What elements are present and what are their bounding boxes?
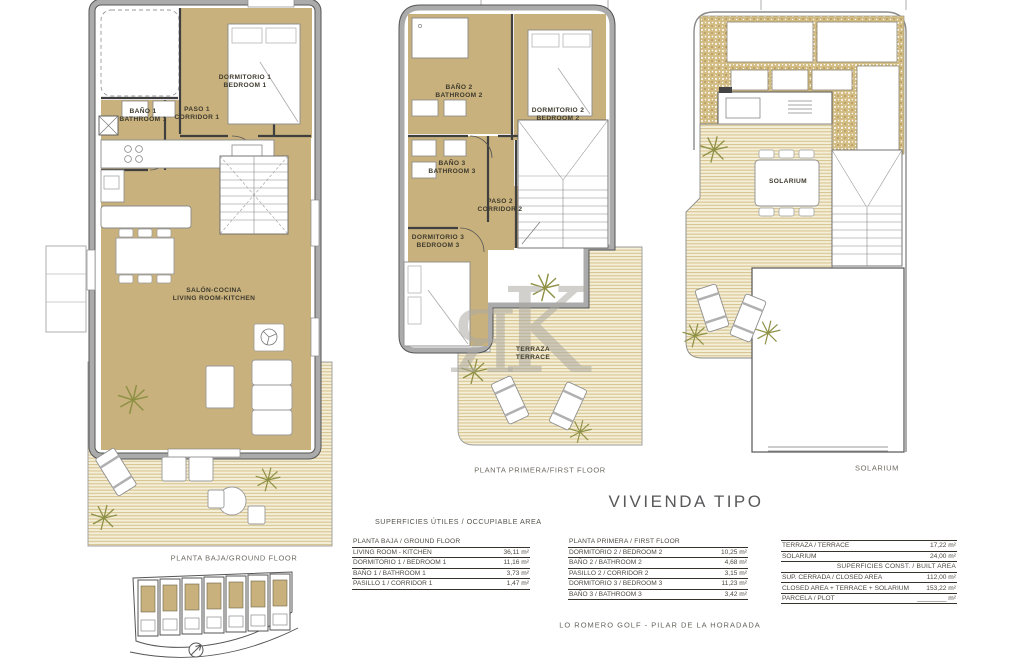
ground-floor-plan xyxy=(46,0,332,546)
solarium-stairs xyxy=(832,150,902,266)
label-terrace: TERRAZA TERRACE xyxy=(516,346,550,362)
table-row: LIVING ROOM - KITCHEN36,11 m² xyxy=(352,548,530,559)
page-title: VIVIENDA TIPO xyxy=(608,492,763,512)
section-title-occupiable: SUPERFICIES ÚTILES / OCCUPIABLE AREA xyxy=(375,517,542,526)
label-solarium: SOLARIUM xyxy=(769,178,807,186)
table-row: SOLARIUM24,00 m² xyxy=(781,552,957,563)
ground-stairs xyxy=(220,156,288,234)
caption-ground-floor: PLANTA BAJA/GROUND FLOOR xyxy=(171,554,298,563)
label-bedroom1: DORMITORIO 1 BEDROOM 1 xyxy=(219,74,271,90)
solarium-lower-room xyxy=(752,268,904,452)
caption-solarium: SOLARIUM xyxy=(855,464,899,473)
table-row: DORMITORIO 2 / BEDROOM 210,25 m² xyxy=(568,548,748,559)
table-ground-floor-areas: PLANTA BAJA / GROUND FLOOR LIVING ROOM -… xyxy=(352,537,530,590)
table-subheader: SUPERFICIES CONST. / BUILT AREA xyxy=(781,562,957,573)
table-row: PARCELA / PLOT________ m² xyxy=(781,594,957,605)
label-bathroom1: BAÑO 1 BATHROOM 1 xyxy=(119,108,166,124)
site-plan xyxy=(130,572,298,657)
table-header: PLANTA PRIMERA / FIRST FLOOR xyxy=(568,537,748,548)
first-stairs xyxy=(518,120,608,248)
table-row: TERRAZA / TERRACE17,22 m² xyxy=(781,541,957,552)
caption-first-floor: PLANTA PRIMERA/FIRST FLOOR xyxy=(474,466,606,475)
ground-carport xyxy=(101,10,179,96)
table-row: DORMITORIO 1 / BEDROOM 111,16 m² xyxy=(352,558,530,569)
table-row: DORMITORIO 3 / BEDROOM 311,23 m² xyxy=(568,579,748,590)
table-row: BAÑO 3 / BATHROOM 33,42 m² xyxy=(568,590,748,601)
label-corridor2: PASO 2 CORRIDOR 2 xyxy=(478,198,523,214)
project-location: LO ROMERO GOLF - PILAR DE LA HORADADA xyxy=(559,621,761,630)
table-first-floor-areas: PLANTA PRIMERA / FIRST FLOOR DORMITORIO … xyxy=(568,537,748,600)
floorplan-page: ЯK BAÑO 1 BATHROOM 1 PASO 1 CORRIDOR 1 D… xyxy=(0,0,1020,669)
table-header: PLANTA BAJA / GROUND FLOOR xyxy=(352,537,530,548)
table-row: BAÑO 2 / BATHROOM 24,68 m² xyxy=(568,558,748,569)
table-row: PASILLO 2 / CORRIDOR 23,15 m² xyxy=(568,569,748,580)
dining-table xyxy=(116,229,174,283)
label-living-room: SALÓN-COCINA LIVING ROOM-KITCHEN xyxy=(173,287,255,303)
table-built-areas: TERRAZA / TERRACE17,22 m² SOLARIUM24,00 … xyxy=(781,540,957,604)
table-row: PASILLO 1 / CORRIDOR 11,47 m² xyxy=(352,579,530,590)
table-row: BAÑO 1 / BATHROOM 13,73 m² xyxy=(352,569,530,580)
first-floor-plan xyxy=(402,0,642,445)
label-bedroom3: DORMITORIO 3 BEDROOM 3 xyxy=(412,234,464,250)
solarium-plan xyxy=(683,0,906,452)
label-bedroom2: DORMITORIO 2 BEDROOM 2 xyxy=(532,107,584,123)
label-bathroom3: BAÑO 3 BATHROOM 3 xyxy=(428,160,475,176)
compass-icon xyxy=(189,643,203,657)
label-corridor1: PASO 1 CORRIDOR 1 xyxy=(175,106,220,122)
label-bathroom2: BAÑO 2 BATHROOM 2 xyxy=(435,84,482,100)
table-row: CLOSED AREA + TERRACE + SOLARIUM153,22 m… xyxy=(781,583,957,594)
table-row: SUP. CERRADA / CLOSED AREA112,00 m² xyxy=(781,573,957,584)
solarium-kitchenette xyxy=(718,92,832,124)
